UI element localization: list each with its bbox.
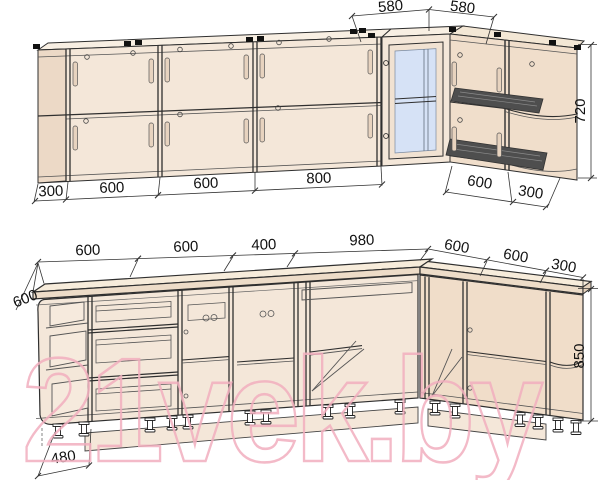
dim-upper-600-a: 600 <box>99 179 125 197</box>
dim-lower-600-b: 600 <box>173 238 199 256</box>
drawing-canvas: 580 580 300 600 600 800 600 300 720 600 … <box>0 0 600 480</box>
dim-corner-580-right: 580 <box>449 0 476 17</box>
dim-upper-height-720: 720 <box>572 98 589 123</box>
dim-upper-800: 800 <box>306 170 332 188</box>
glass-door <box>384 42 443 159</box>
upper-cabinets <box>33 26 584 183</box>
dim-lower-400: 400 <box>251 236 277 254</box>
dim-corner-580-left: 580 <box>377 0 403 16</box>
dim-lower-300: 300 <box>550 256 578 277</box>
dim-lower-980: 980 <box>349 232 375 250</box>
dim-lower-600-a: 600 <box>75 242 101 260</box>
dim-upper-300-left: 300 <box>38 183 64 201</box>
dim-lower-height-850: 850 <box>571 343 588 368</box>
dim-upper-300-right: 300 <box>517 182 544 203</box>
watermark: 21vek.by <box>22 328 543 480</box>
dim-lower-600-c: 600 <box>443 236 471 257</box>
dim-upper-600-right: 600 <box>466 172 493 193</box>
kitchen-technical-drawing: 580 580 300 600 600 800 600 300 720 600 … <box>0 0 600 480</box>
dim-upper-600-b: 600 <box>193 175 219 193</box>
